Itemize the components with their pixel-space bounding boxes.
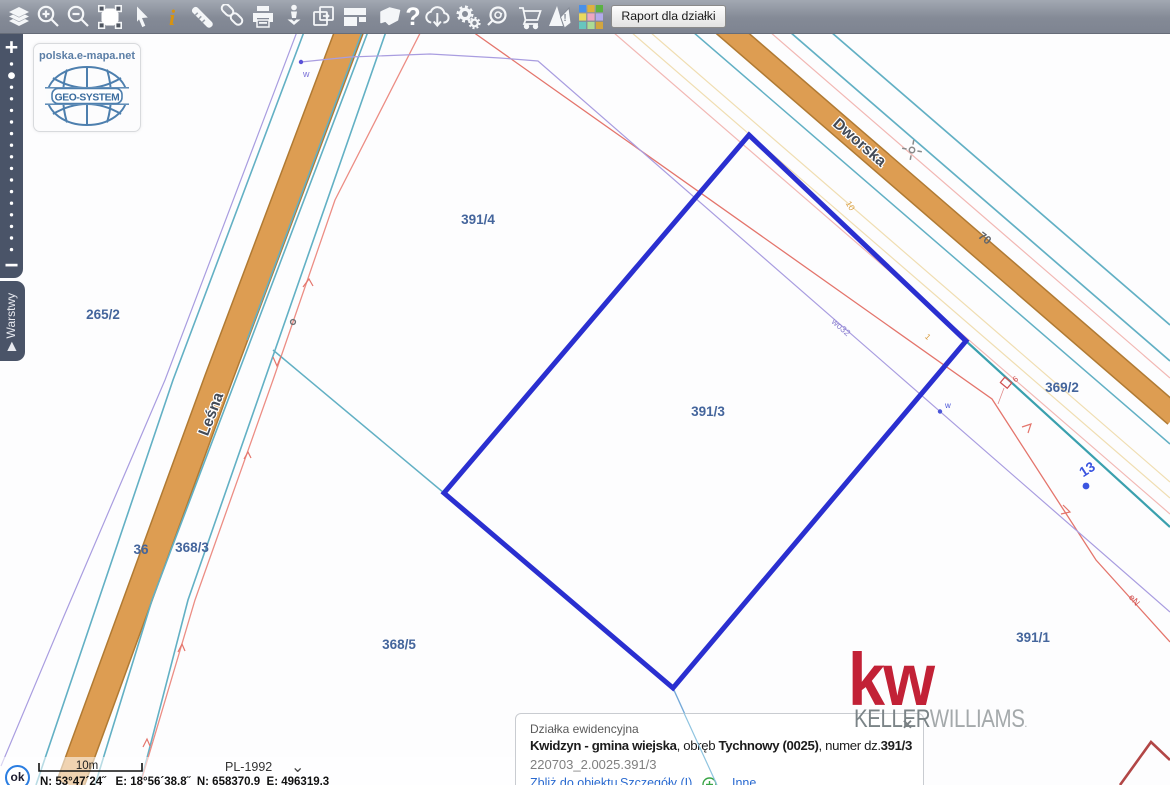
svg-text:GEO-SYSTEM: GEO-SYSTEM [55,93,120,104]
svg-text:391/4: 391/4 [461,212,495,227]
svg-text:10m: 10m [76,760,98,772]
svg-text:369/2: 369/2 [1045,380,1079,395]
svg-text:368/3: 368/3 [175,540,209,555]
svg-text:36: 36 [133,542,149,557]
svg-text:391/1: 391/1 [1016,630,1050,645]
svg-text:391/3: 391/3 [691,404,725,419]
svg-text:w: w [944,401,951,410]
svg-text:i: i [169,5,176,30]
svg-text:!: ! [563,13,566,24]
svg-text:265/2: 265/2 [86,307,120,322]
svg-text:w: w [302,69,310,79]
svg-text:368/5: 368/5 [382,637,416,652]
svg-text:?: ? [405,4,420,30]
